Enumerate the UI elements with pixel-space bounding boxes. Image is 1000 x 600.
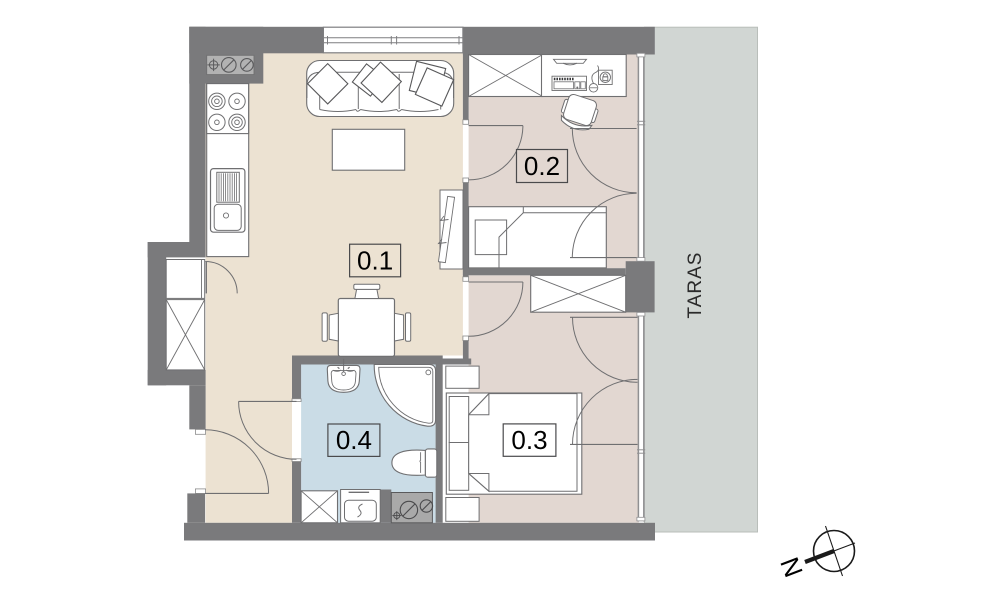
svg-text:0.4: 0.4	[336, 425, 372, 455]
svg-text:0.3: 0.3	[511, 425, 547, 455]
svg-text:TARAS: TARAS	[685, 252, 706, 319]
svg-text:0.2: 0.2	[524, 151, 560, 181]
svg-text:0.1: 0.1	[357, 246, 393, 276]
